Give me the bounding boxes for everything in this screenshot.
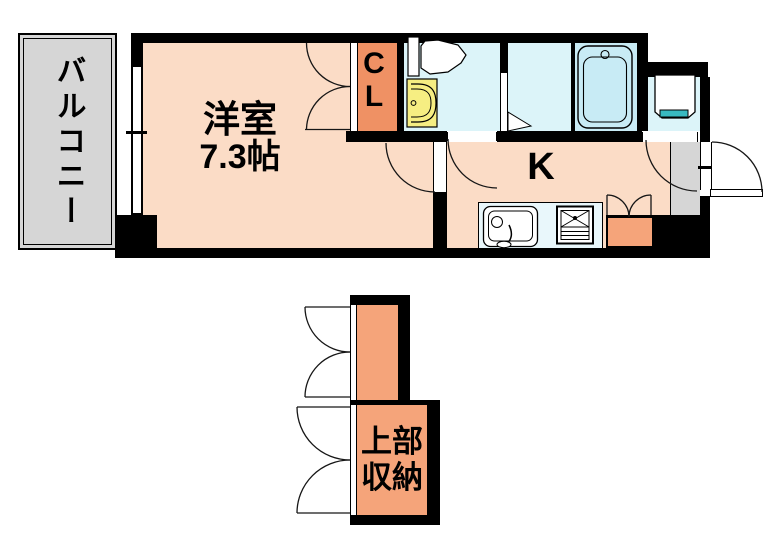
wall-toilet-washroom xyxy=(500,43,508,73)
room-toilet-floor xyxy=(404,43,500,131)
storage-diagram-right-upper-wall xyxy=(398,295,410,405)
kitchen-counter xyxy=(478,202,603,248)
upper-storage-door-arc-3 xyxy=(297,407,350,460)
western-room-name: 洋室 xyxy=(170,101,310,140)
wall-top xyxy=(131,33,648,43)
upper-storage-top-section xyxy=(357,305,398,400)
upper-storage-label: 上部 収納 xyxy=(357,424,427,496)
western-window xyxy=(131,67,143,213)
upper-storage-door-leaves-1 xyxy=(305,307,350,397)
entrance-area xyxy=(670,142,700,216)
kitchen-storage xyxy=(606,215,654,248)
laundry-door-threshold xyxy=(642,132,698,142)
room-laundry-floor xyxy=(648,77,702,131)
room-western-floor-extension xyxy=(346,142,447,248)
upper-storage-door-opening-2 xyxy=(350,405,357,515)
western-window-tick xyxy=(126,131,147,134)
wall-right-upper xyxy=(700,77,710,142)
toilet-washroom-opening xyxy=(500,73,508,131)
wall-closet-right xyxy=(397,43,404,140)
entry-door-tick xyxy=(698,166,712,169)
wall-sanitary-bottom xyxy=(497,131,642,142)
western-room-area: 7.3帖 xyxy=(170,140,310,176)
kitchen-label: K xyxy=(517,146,565,189)
upper-storage-door-leaves-2 xyxy=(297,407,350,513)
wall-laundry-top xyxy=(642,62,708,77)
western-room-label: 洋室 7.3帖 xyxy=(170,101,310,176)
western-kitchen-opening xyxy=(433,142,447,192)
wall-right-mid xyxy=(700,196,710,216)
upper-storage-door-arc-4 xyxy=(297,460,350,513)
wall-bottom xyxy=(115,248,710,258)
wall-left-upper xyxy=(131,43,143,67)
wall-western-kitchen xyxy=(433,192,447,248)
closet-label: C L xyxy=(352,47,396,113)
wall-washroom-bath xyxy=(571,43,575,131)
floor-plan: バルコニー 洋室 7.3帖 C L K 上部 収納 xyxy=(0,0,780,548)
toilet-door-threshold xyxy=(447,132,497,141)
upper-storage-door-opening-1 xyxy=(350,305,357,400)
entry-door-leaf xyxy=(710,189,763,197)
storage-diagram-right-lower-wall xyxy=(427,400,440,525)
balcony-label: バルコニー xyxy=(18,38,117,246)
upper-storage-door-arc-2 xyxy=(305,352,350,397)
wall-mid-horizontal xyxy=(346,131,447,142)
wall-corner-mass xyxy=(653,215,710,258)
entry-door-arc xyxy=(712,142,762,192)
room-bath-floor xyxy=(575,43,637,131)
storage-diagram-bottom-wall xyxy=(350,515,440,525)
upper-storage-door-arc-1 xyxy=(305,307,350,352)
room-washroom-floor xyxy=(508,43,571,131)
wall-bath-right xyxy=(637,33,648,131)
